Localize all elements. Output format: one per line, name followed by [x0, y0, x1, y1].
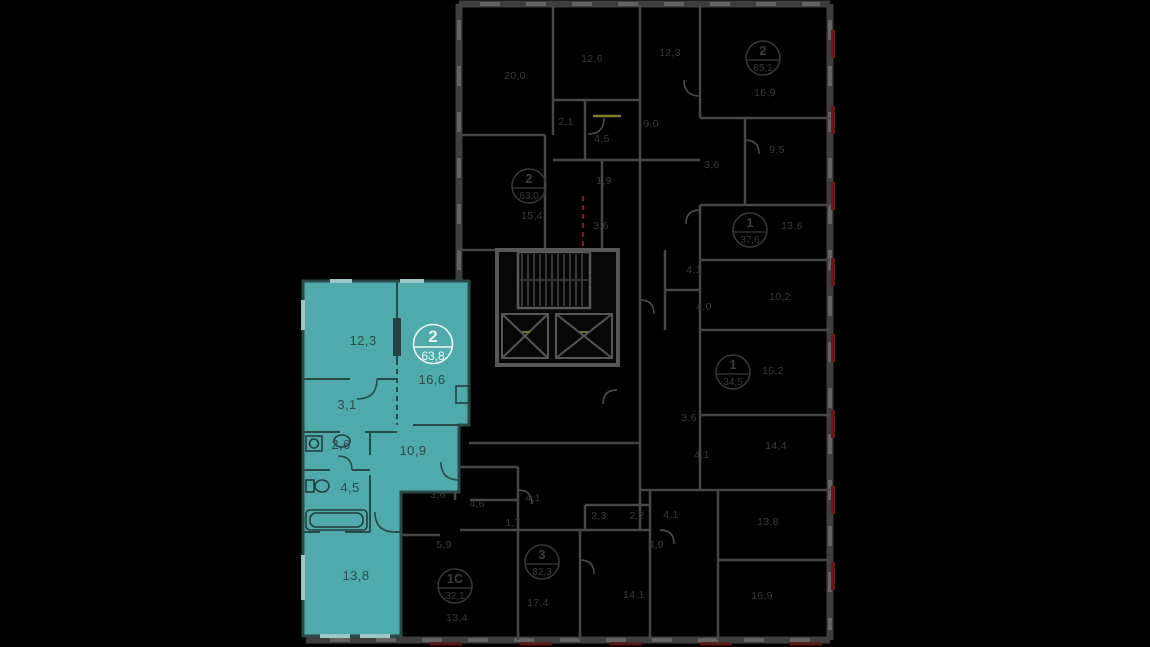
room-area-label: 2,1 — [558, 116, 574, 128]
badge-rooms-count: 2 — [526, 172, 533, 186]
room-area-label: 4,1 — [694, 449, 710, 461]
room-area-label: 3,1 — [337, 397, 356, 412]
room-area-label: 13,6 — [781, 220, 803, 232]
ghost-apartment-badge: 1С32,1 — [438, 569, 472, 603]
room-area-label: 17,4 — [527, 597, 549, 609]
badge-rooms-count: 1С — [447, 572, 463, 586]
room-area-label: 2,2 — [629, 510, 645, 522]
room-area-label: 9,0 — [643, 118, 659, 130]
ghost-apartment-badge: 134,5 — [716, 355, 750, 389]
room-area-label: 13,8 — [757, 516, 779, 528]
room-area-label: 16,9 — [751, 590, 773, 602]
stair-elevator-core — [497, 250, 618, 365]
room-area-label: 13,8 — [343, 568, 370, 583]
ghost-apartment-badge: 263,0 — [512, 169, 546, 203]
room-area-label: 10,9 — [400, 443, 427, 458]
room-area-label: 1,7 — [505, 517, 521, 529]
room-area-label: 16,6 — [419, 372, 446, 387]
room-area-label: 4,5 — [594, 133, 610, 145]
room-area-label: 3,6 — [704, 159, 720, 171]
badge-rooms-count: 2 — [760, 44, 767, 58]
room-area-label: 3,6 — [681, 412, 697, 424]
room-area-label: 16,9 — [754, 87, 776, 99]
ghost-apartment-badge: 265,1 — [746, 41, 780, 75]
badge-total-area: 34,5 — [723, 377, 743, 388]
badge-total-area: 63,8 — [421, 349, 445, 363]
room-area-label: 14,1 — [623, 589, 645, 601]
room-area-label: 12,3 — [659, 47, 681, 59]
room-area-label: 3,6 — [593, 220, 609, 232]
room-area-label: 10,2 — [769, 291, 791, 303]
room-area-label: 4,0 — [696, 301, 712, 313]
room-area-label: 13,4 — [446, 612, 468, 624]
room-area-label: 5,9 — [436, 539, 452, 551]
ghost-apartment-badge: 137,6 — [733, 213, 767, 247]
badge-rooms-count: 2 — [428, 327, 437, 346]
badge-total-area: 63,0 — [519, 191, 539, 202]
room-area-label: 20,0 — [504, 70, 526, 82]
room-area-label: 2,3 — [591, 510, 607, 522]
room-area-label: 16,2 — [762, 365, 784, 377]
highlighted-apartment[interactable]: 12,316,63,12,64,510,913,8 2 63,8 — [303, 281, 469, 636]
room-area-label: 12,6 — [581, 53, 603, 65]
room-area-label: 15,4 — [521, 210, 543, 222]
floorplan-svg: 20,012,612,316,92,14,59,03,69,51,93,615,… — [0, 0, 1150, 647]
room-area-label: 4,5 — [340, 480, 359, 495]
badge-total-area: 82,3 — [532, 567, 552, 578]
badge-total-area: 37,6 — [740, 235, 760, 246]
badge-rooms-count: 3 — [539, 548, 546, 562]
apartment-fill — [303, 281, 469, 636]
room-area-label: 2,6 — [331, 437, 350, 452]
badge-total-area: 32,1 — [445, 591, 465, 602]
room-area-label: 4,1 — [663, 509, 679, 521]
wall-pier — [393, 318, 401, 356]
ghost-apartment-badge: 382,3 — [525, 545, 559, 579]
badge-rooms-count: 1 — [747, 216, 754, 230]
room-area-label: 4,1 — [525, 492, 541, 504]
room-area-label: 14,4 — [765, 440, 787, 452]
badge-total-area: 65,1 — [753, 63, 773, 74]
floorplan-viewer: 20,012,612,316,92,14,59,03,69,51,93,615,… — [0, 0, 1150, 647]
room-area-label: 4,6 — [469, 498, 485, 510]
room-area-label: 9,5 — [769, 144, 785, 156]
room-area-label: 12,3 — [350, 333, 377, 348]
badge-rooms-count: 1 — [730, 358, 737, 372]
room-area-label: 4,9 — [648, 539, 664, 551]
room-area-label: 4,1 — [686, 264, 702, 276]
room-area-label: 1,9 — [596, 175, 612, 187]
